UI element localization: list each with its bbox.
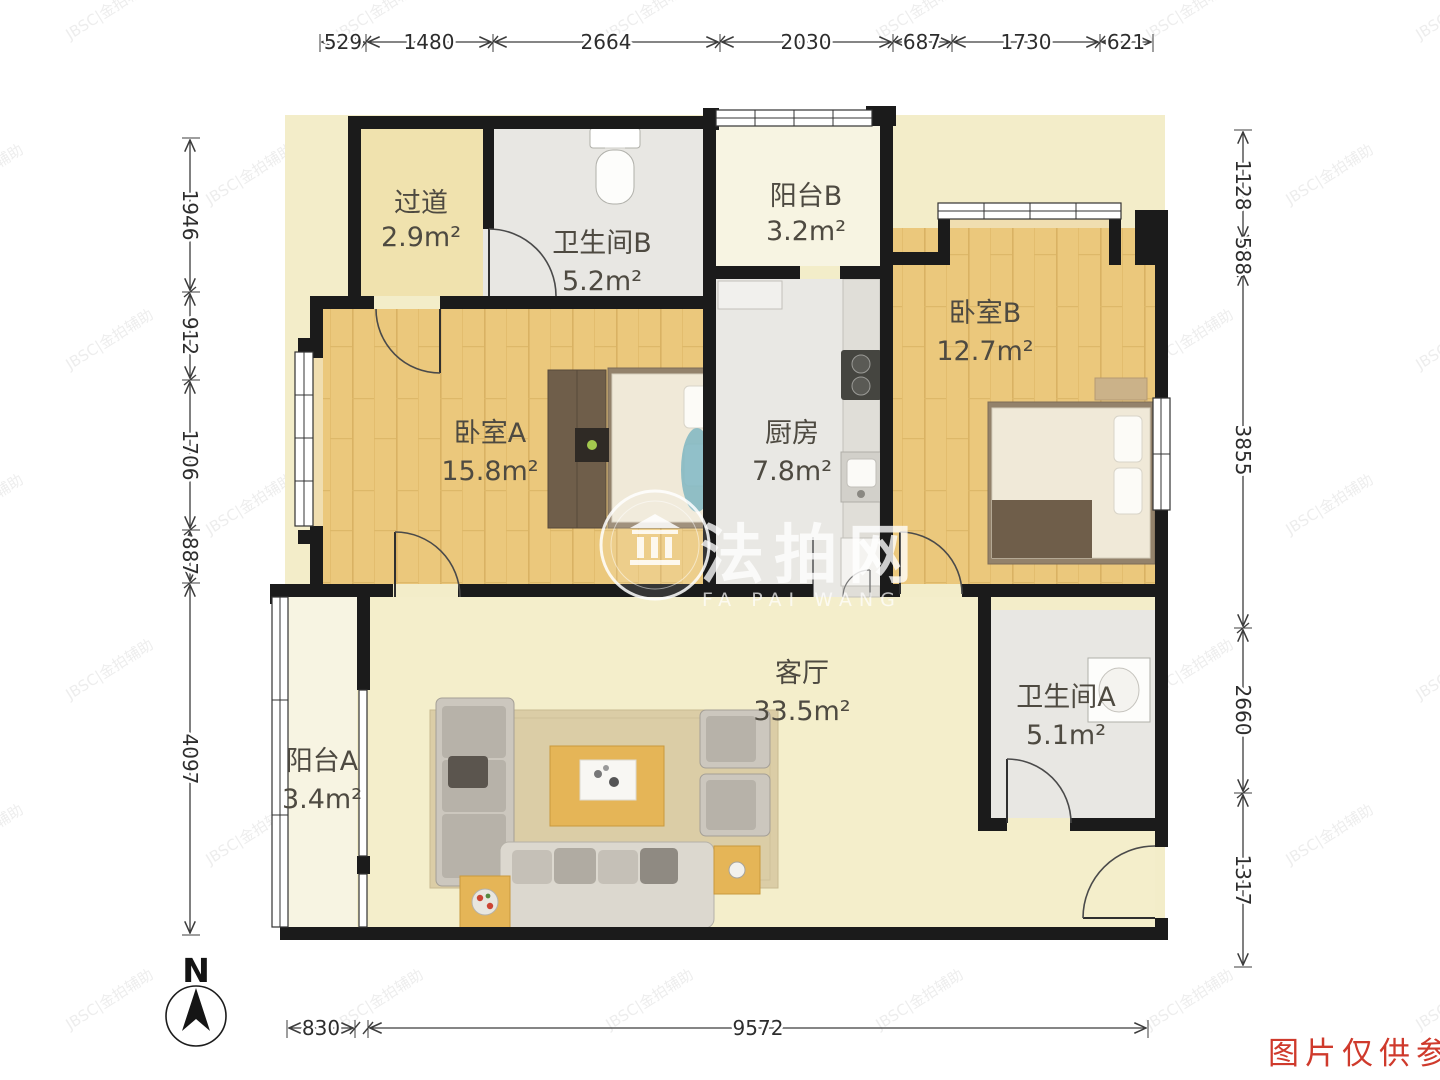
watermark-tile-text: JBSC|金拍辅助 — [1412, 965, 1440, 1034]
window-bedroomB-right — [1153, 398, 1170, 510]
room-name-label: 卧室A — [454, 418, 527, 449]
dimension-label: 887 — [178, 537, 202, 575]
room-area-label: 5.1m² — [1026, 720, 1106, 751]
watermark-tile-text: JBSC|金拍辅助 — [0, 800, 27, 869]
window-balconyB-top — [716, 110, 872, 126]
dimension-top: 529 1480 2664 2030 687 1730 621 — [320, 30, 1153, 54]
compass-needle-icon — [182, 988, 210, 1031]
room-area-label: 7.8m² — [752, 456, 832, 487]
stove-icon — [841, 350, 882, 400]
watermark-tile-text: JBSC|金拍辅助 — [0, 140, 27, 209]
dimension-label: 1128 — [1231, 160, 1255, 211]
dimension-label: 912 — [178, 317, 202, 355]
dimension-bottom: 830 9572 — [287, 1016, 1148, 1040]
dimension-label: 1946 — [178, 190, 202, 241]
room-area-label: 3.2m² — [766, 216, 846, 247]
room-area-label: 15.8m² — [441, 456, 538, 487]
watermark-tile-text: JBSC|金拍辅助 — [1282, 800, 1377, 869]
watermark-tile-text: JBSC|金拍辅助 — [62, 305, 157, 374]
dimension-label: 830 — [302, 1016, 340, 1040]
watermark-tile-text: JBSC|金拍辅助 — [1142, 965, 1237, 1034]
window-bedroomB-bay — [938, 203, 1121, 219]
room-name-label: 过道 — [394, 188, 448, 219]
dimension-label: 687 — [903, 30, 941, 54]
watermark-tile-text: JBSC|金拍辅助 — [202, 470, 297, 539]
dimension-left: 1946 912 1706 887 4097 — [178, 138, 202, 935]
watermark-tile-text: JBSC|金拍辅助 — [62, 0, 157, 44]
dimension-label: 1730 — [1001, 30, 1052, 54]
watermark-tile-text: JBSC|金拍辅助 — [202, 140, 297, 209]
room-name-label: 阳台A — [286, 746, 359, 777]
dimension-label: 1706 — [178, 430, 202, 481]
dimension-right: 1128 588 3855 2660 1317 — [1231, 130, 1255, 967]
watermark-tile-text: JBSC|金拍辅助 — [0, 470, 27, 539]
room-name-label: 客厅 — [775, 658, 829, 689]
room-area-label: 3.4m² — [282, 784, 362, 815]
room-name-label: 厨房 — [765, 418, 819, 449]
dimension-label: 2660 — [1231, 685, 1255, 736]
dimension-label: 588 — [1231, 237, 1255, 275]
disclaimer-text: 图片仅供参考 — [1268, 1036, 1440, 1071]
dimension-label: 621 — [1107, 30, 1145, 54]
dimension-label: 9572 — [733, 1016, 784, 1040]
watermark-tile-text: JBSC|金拍辅助 — [1282, 470, 1377, 539]
bed-icon-b — [988, 378, 1155, 564]
dimension-label: 4097 — [178, 734, 202, 785]
room-area-label: 12.7m² — [936, 336, 1033, 367]
room-area-label: 2.9m² — [381, 222, 461, 253]
room-name-label: 阳台B — [770, 181, 843, 212]
dimension-label: 3855 — [1231, 425, 1255, 476]
room-name-label: 卫生间B — [552, 228, 652, 259]
brand-text: 法拍网 — [700, 519, 922, 593]
watermark-tile-text: JBSC|金拍辅助 — [1142, 0, 1237, 44]
dimension-label: 2664 — [581, 30, 632, 54]
side-table-icon — [714, 846, 760, 894]
watermark-tile-text: JBSC|金拍辅助 — [62, 965, 157, 1034]
room-name-label: 卫生间A — [1016, 682, 1116, 713]
compass: N — [166, 951, 226, 1046]
dimension-label: 1317 — [1231, 855, 1255, 906]
brand-subtext: FA PAI WANG — [702, 589, 902, 611]
watermark-tile-text: JBSC|金拍辅助 — [1412, 305, 1440, 374]
watermark-tile-text: JBSC|金拍辅助 — [62, 635, 157, 704]
plant-table-icon — [460, 876, 510, 930]
dimension-label: 529 — [324, 30, 362, 54]
dimension-label: 2030 — [781, 30, 832, 54]
watermark-tile-text: JBSC|金拍辅助 — [332, 965, 427, 1034]
room-area-label: 5.2m² — [562, 266, 642, 297]
coffee-table-icon — [550, 746, 664, 826]
toilet-icon — [590, 128, 640, 204]
dimension-label: 1480 — [404, 30, 455, 54]
watermark-tile-text: JBSC|金拍辅助 — [1412, 635, 1440, 704]
window-bedroomA-bay — [295, 352, 313, 526]
floor-plan-canvas: JBSC|金拍辅助JBSC|金拍辅助JBSC|金拍辅助JBSC|金拍辅助JBSC… — [0, 0, 1440, 1080]
watermark-tile-text: JBSC|金拍辅助 — [1282, 140, 1377, 209]
room-name-label: 卧室B — [949, 298, 1022, 329]
watermark-tile-text: JBSC|金拍辅助 — [1412, 0, 1440, 44]
watermark-tile-text: JBSC|金拍辅助 — [872, 965, 967, 1034]
room-area-label: 33.5m² — [753, 696, 850, 727]
sink-icon — [841, 452, 882, 502]
watermark-tile-text: JBSC|金拍辅助 — [602, 965, 697, 1034]
compass-north-label: N — [182, 951, 210, 990]
